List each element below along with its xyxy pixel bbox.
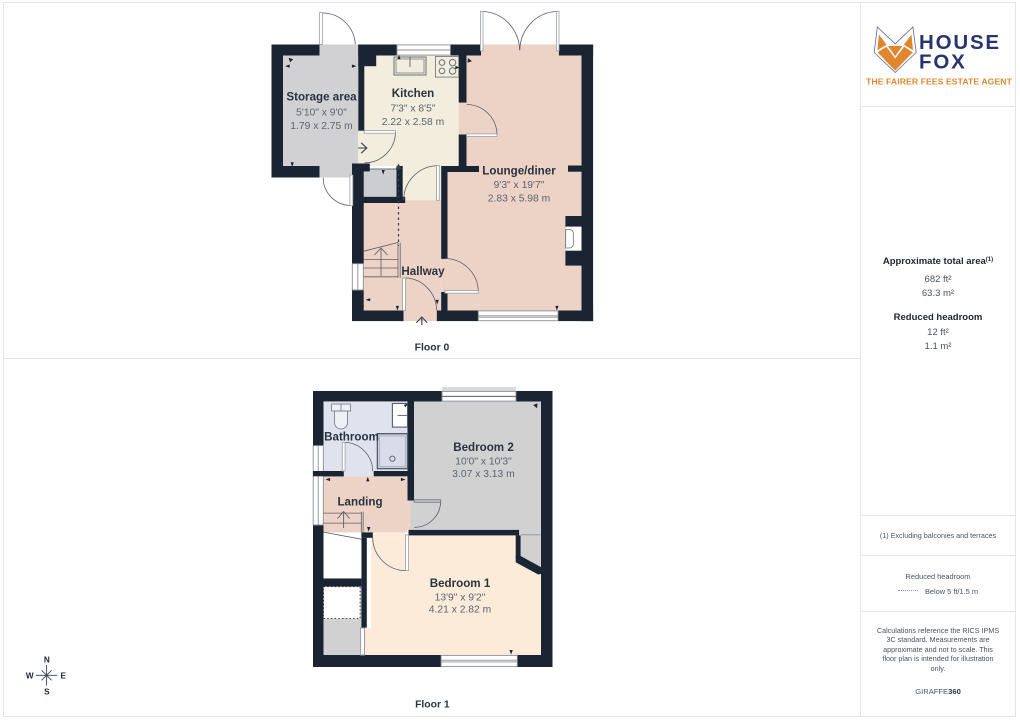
svg-text:4.21 x 2.82 m: 4.21 x 2.82 m <box>429 605 491 616</box>
svg-text:FOX: FOX <box>919 51 967 74</box>
svg-text:7'3" x 8'5": 7'3" x 8'5" <box>390 104 435 115</box>
svg-text:3.07 x 3.13 m: 3.07 x 3.13 m <box>452 469 514 480</box>
svg-text:S: S <box>44 688 50 697</box>
svg-text:Storage area: Storage area <box>286 91 357 104</box>
svg-text:Floor 1: Floor 1 <box>415 699 450 710</box>
svg-text:9'3" x 19'7": 9'3" x 19'7" <box>494 180 545 191</box>
svg-text:13'9" x 9'2": 13'9" x 9'2" <box>435 593 486 604</box>
svg-text:5'10" x 9'0": 5'10" x 9'0" <box>296 107 347 118</box>
svg-text:N: N <box>44 655 50 664</box>
svg-text:Bedroom 1: Bedroom 1 <box>430 577 491 590</box>
svg-text:Floor 0: Floor 0 <box>415 342 450 353</box>
svg-text:10'0" x 10'3": 10'0" x 10'3" <box>455 457 512 468</box>
svg-text:Landing: Landing <box>337 496 382 509</box>
svg-text:1.79 x 2.75 m: 1.79 x 2.75 m <box>290 121 352 132</box>
svg-text:Bedroom 2: Bedroom 2 <box>453 441 514 454</box>
svg-text:Lounge/diner: Lounge/diner <box>482 165 556 178</box>
svg-text:2.22 x 2.58 m: 2.22 x 2.58 m <box>382 117 444 128</box>
svg-text:Kitchen: Kitchen <box>392 87 435 100</box>
svg-text:Hallway: Hallway <box>401 265 445 278</box>
svg-text:2.83 x 5.98 m: 2.83 x 5.98 m <box>488 193 550 204</box>
svg-text:E: E <box>60 671 66 680</box>
svg-text:W: W <box>26 671 34 680</box>
svg-text:THE FAIRER FEES ESTATE AGENT: THE FAIRER FEES ESTATE AGENT <box>866 77 1013 87</box>
svg-text:Bathroom: Bathroom <box>324 431 379 444</box>
